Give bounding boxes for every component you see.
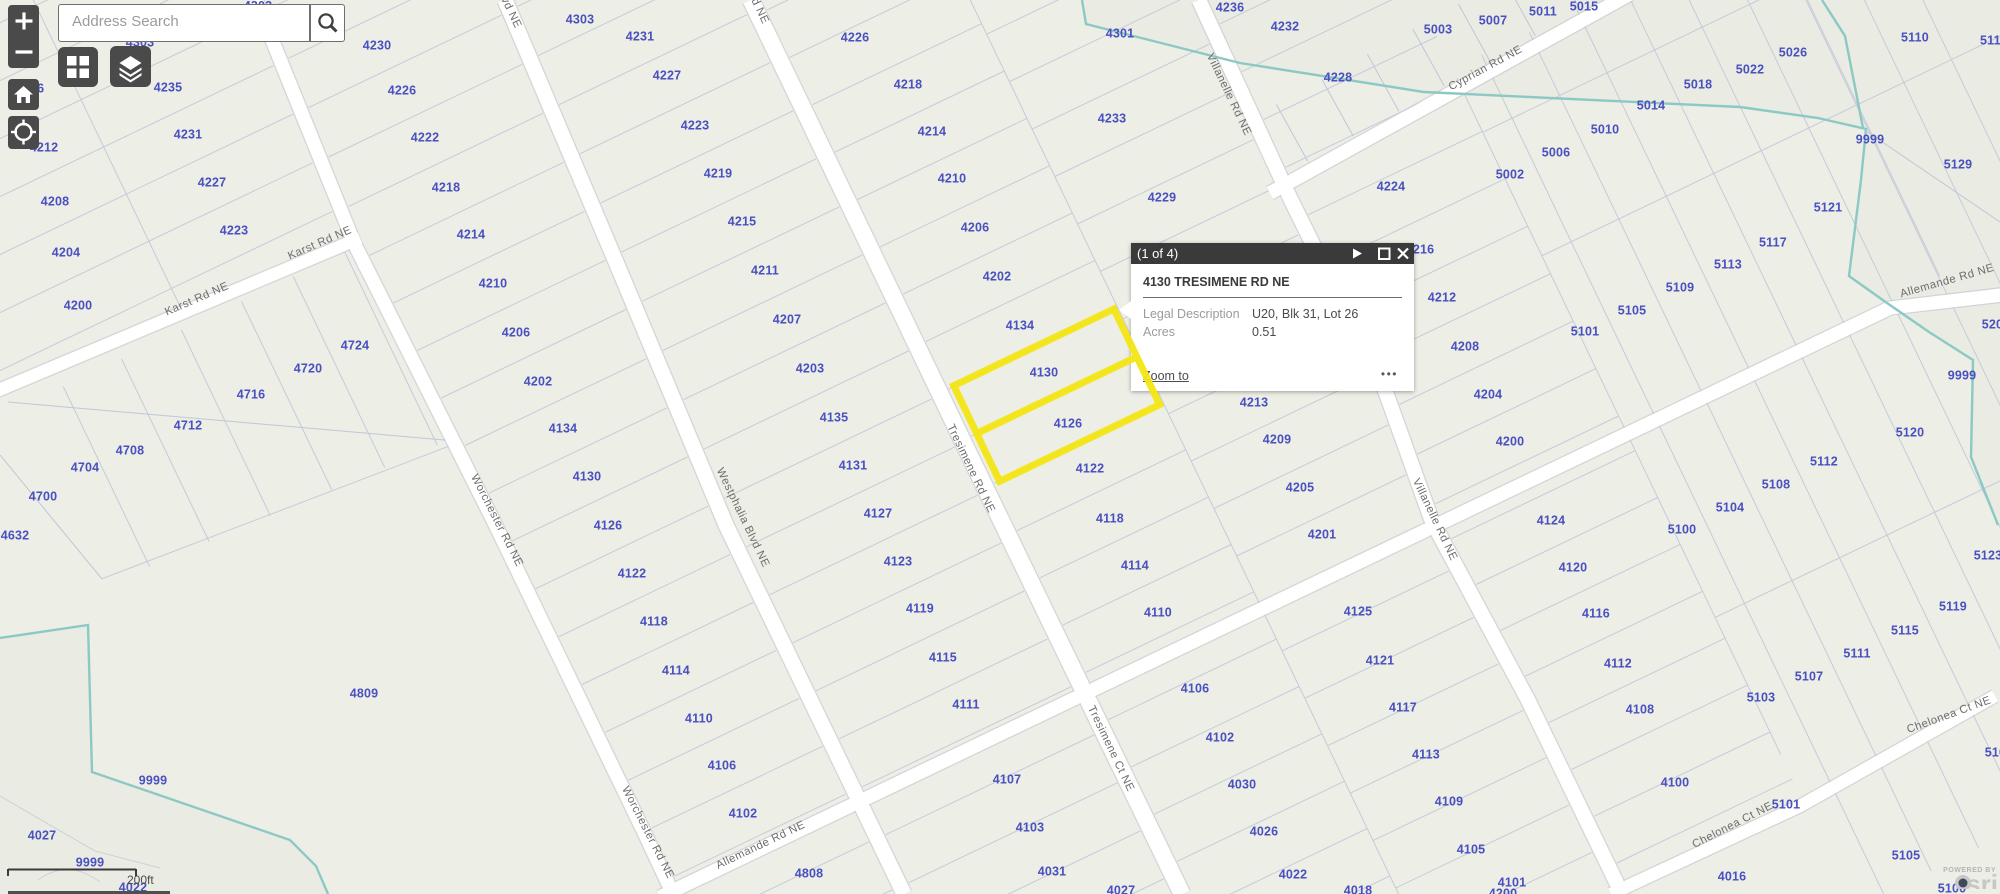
svg-text:4214: 4214 xyxy=(918,125,947,139)
svg-text:4203: 4203 xyxy=(796,362,825,376)
svg-text:4226: 4226 xyxy=(841,31,870,45)
svg-text:4209: 4209 xyxy=(1263,433,1292,447)
svg-text:4135: 4135 xyxy=(820,411,849,425)
svg-text:5110: 5110 xyxy=(1901,31,1929,45)
svg-text:4226: 4226 xyxy=(388,84,417,98)
svg-text:4206: 4206 xyxy=(961,221,990,235)
svg-text:4632: 4632 xyxy=(1,529,30,543)
svg-text:4208: 4208 xyxy=(41,195,70,209)
svg-text:5105: 5105 xyxy=(1618,304,1647,318)
svg-text:4201: 4201 xyxy=(1308,528,1337,542)
svg-text:4200: 4200 xyxy=(64,299,93,313)
svg-text:4218: 4218 xyxy=(894,78,923,92)
svg-text:4134: 4134 xyxy=(549,422,578,436)
svg-text:4210: 4210 xyxy=(479,277,508,291)
svg-text:5100: 5100 xyxy=(1668,523,1697,537)
svg-text:4231: 4231 xyxy=(626,30,655,44)
svg-text:4223: 4223 xyxy=(220,224,249,238)
svg-text:4018: 4018 xyxy=(1344,884,1373,894)
svg-text:5115: 5115 xyxy=(1980,34,2000,48)
svg-text:4206: 4206 xyxy=(502,326,531,340)
svg-text:4031: 4031 xyxy=(1038,865,1067,879)
svg-text:4228: 4228 xyxy=(1324,71,1353,85)
svg-text:4131: 4131 xyxy=(839,459,868,473)
svg-text:4111: 4111 xyxy=(952,698,979,712)
svg-text:4124: 4124 xyxy=(1537,514,1566,528)
svg-text:5104: 5104 xyxy=(1716,501,1745,515)
svg-text:200ft: 200ft xyxy=(127,873,154,887)
svg-text:4110: 4110 xyxy=(685,712,713,726)
svg-text:4103: 4103 xyxy=(1016,821,1045,835)
svg-text:5018: 5018 xyxy=(1684,78,1713,92)
svg-text:5117: 5117 xyxy=(1759,236,1787,250)
svg-text:4016: 4016 xyxy=(1718,870,1747,884)
svg-text:4122: 4122 xyxy=(1076,462,1105,476)
svg-text:5123: 5123 xyxy=(1974,549,2000,563)
svg-text:5101: 5101 xyxy=(1571,325,1600,339)
svg-text:5011: 5011 xyxy=(1529,5,1557,19)
svg-text:4027: 4027 xyxy=(1107,884,1136,894)
svg-text:4230: 4230 xyxy=(363,39,392,53)
svg-text:4236: 4236 xyxy=(1216,1,1245,15)
svg-text:5115: 5115 xyxy=(1891,624,1919,638)
svg-text:4030: 4030 xyxy=(1228,778,1257,792)
svg-text:4123: 4123 xyxy=(884,555,913,569)
svg-text:5200: 5200 xyxy=(1982,318,2000,332)
svg-text:9999: 9999 xyxy=(1948,369,1977,383)
svg-text:4130: 4130 xyxy=(573,470,602,484)
svg-text:4127: 4127 xyxy=(864,507,893,521)
svg-text:5108: 5108 xyxy=(1762,478,1791,492)
svg-text:4026: 4026 xyxy=(1250,825,1279,839)
svg-text:4106: 4106 xyxy=(708,759,737,773)
svg-text:5007: 5007 xyxy=(1479,14,1508,28)
svg-text:4106: 4106 xyxy=(1181,682,1210,696)
svg-text:4130: 4130 xyxy=(1030,366,1059,380)
svg-text:5015: 5015 xyxy=(1570,0,1599,14)
svg-text:5101: 5101 xyxy=(1772,798,1801,812)
svg-text:4808: 4808 xyxy=(795,867,824,881)
svg-text:4118: 4118 xyxy=(1096,512,1124,526)
svg-text:4301: 4301 xyxy=(1106,27,1135,41)
svg-text:4231: 4231 xyxy=(174,128,203,142)
svg-text:4022: 4022 xyxy=(1279,868,1308,882)
svg-text:4200: 4200 xyxy=(1489,887,1518,894)
svg-text:4121: 4121 xyxy=(1366,654,1395,668)
svg-text:4224: 4224 xyxy=(1377,180,1406,194)
svg-text:4716: 4716 xyxy=(237,388,266,402)
svg-text:4712: 4712 xyxy=(174,419,203,433)
svg-text:4115: 4115 xyxy=(929,651,957,665)
svg-text:4114: 4114 xyxy=(1121,559,1149,573)
svg-text:4212: 4212 xyxy=(1428,291,1457,305)
svg-text:9999: 9999 xyxy=(1856,133,1885,147)
svg-text:4223: 4223 xyxy=(681,119,710,133)
svg-text:5107: 5107 xyxy=(1795,670,1824,684)
svg-text:5010: 5010 xyxy=(1591,123,1620,137)
svg-text:sri: sri xyxy=(1966,869,1998,889)
svg-text:4211: 4211 xyxy=(751,264,779,278)
svg-text:4114: 4114 xyxy=(662,664,690,678)
svg-text:5111: 5111 xyxy=(1843,647,1870,661)
svg-text:4102: 4102 xyxy=(1206,731,1235,745)
svg-text:4126: 4126 xyxy=(594,519,623,533)
svg-text:4105: 4105 xyxy=(1457,843,1486,857)
svg-text:4205: 4205 xyxy=(1286,481,1315,495)
svg-text:4214: 4214 xyxy=(457,228,486,242)
svg-text:4125: 4125 xyxy=(1344,605,1373,619)
svg-text:4118: 4118 xyxy=(640,615,668,629)
svg-text:4229: 4229 xyxy=(1148,191,1177,205)
svg-text:4720: 4720 xyxy=(294,362,323,376)
svg-text:4116: 4116 xyxy=(1582,607,1610,621)
svg-text:5121: 5121 xyxy=(1814,201,1843,215)
svg-text:5102: 5102 xyxy=(1985,746,2000,760)
svg-text:4204: 4204 xyxy=(1474,388,1503,402)
svg-text:4122: 4122 xyxy=(618,567,647,581)
svg-text:5129: 5129 xyxy=(1944,158,1973,172)
svg-text:4027: 4027 xyxy=(28,829,57,843)
svg-text:4108: 4108 xyxy=(1626,703,1655,717)
svg-text:4215: 4215 xyxy=(728,215,757,229)
svg-text:4207: 4207 xyxy=(773,313,802,327)
svg-text:5109: 5109 xyxy=(1666,281,1695,295)
svg-text:5105: 5105 xyxy=(1892,849,1921,863)
svg-text:4232: 4232 xyxy=(1271,20,1300,34)
svg-text:4100: 4100 xyxy=(1661,776,1690,790)
svg-text:4110: 4110 xyxy=(1144,606,1172,620)
svg-text:4222: 4222 xyxy=(411,131,440,145)
svg-text:4202: 4202 xyxy=(524,375,553,389)
svg-text:4202: 4202 xyxy=(983,270,1012,284)
svg-text:4227: 4227 xyxy=(653,69,682,83)
svg-text:4700: 4700 xyxy=(29,490,58,504)
svg-text:4134: 4134 xyxy=(1006,319,1035,333)
svg-text:9999: 9999 xyxy=(139,774,168,788)
svg-text:4210: 4210 xyxy=(938,172,967,186)
svg-text:4113: 4113 xyxy=(1412,748,1440,762)
svg-text:4724: 4724 xyxy=(341,339,370,353)
svg-text:5120: 5120 xyxy=(1896,426,1925,440)
svg-text:4120: 4120 xyxy=(1559,561,1588,575)
svg-text:4204: 4204 xyxy=(52,246,81,260)
svg-text:4218: 4218 xyxy=(432,181,461,195)
svg-text:5022: 5022 xyxy=(1736,63,1765,77)
svg-text:4107: 4107 xyxy=(993,773,1022,787)
svg-text:4704: 4704 xyxy=(71,461,100,475)
svg-text:5026: 5026 xyxy=(1779,46,1808,60)
svg-text:4227: 4227 xyxy=(198,176,227,190)
svg-text:5113: 5113 xyxy=(1714,258,1742,272)
svg-text:5112: 5112 xyxy=(1810,455,1838,469)
svg-text:4219: 4219 xyxy=(704,167,733,181)
svg-text:4809: 4809 xyxy=(350,687,379,701)
svg-text:4112: 4112 xyxy=(1604,657,1632,671)
svg-text:4208: 4208 xyxy=(1451,340,1480,354)
svg-text:4233: 4233 xyxy=(1098,112,1127,126)
svg-text:4303: 4303 xyxy=(566,13,595,27)
svg-text:4117: 4117 xyxy=(1389,701,1417,715)
svg-text:5103: 5103 xyxy=(1747,691,1776,705)
svg-text:5006: 5006 xyxy=(1542,146,1571,160)
svg-text:5119: 5119 xyxy=(1939,600,1967,614)
svg-text:4708: 4708 xyxy=(116,444,145,458)
svg-text:4119: 4119 xyxy=(906,602,934,616)
svg-text:5003: 5003 xyxy=(1424,23,1453,37)
svg-text:5002: 5002 xyxy=(1496,168,1525,182)
svg-text:4213: 4213 xyxy=(1240,396,1269,410)
svg-text:4200: 4200 xyxy=(1496,435,1525,449)
svg-text:4102: 4102 xyxy=(729,807,758,821)
svg-text:4109: 4109 xyxy=(1435,795,1464,809)
svg-text:5014: 5014 xyxy=(1637,99,1666,113)
svg-text:4126: 4126 xyxy=(1054,417,1083,431)
